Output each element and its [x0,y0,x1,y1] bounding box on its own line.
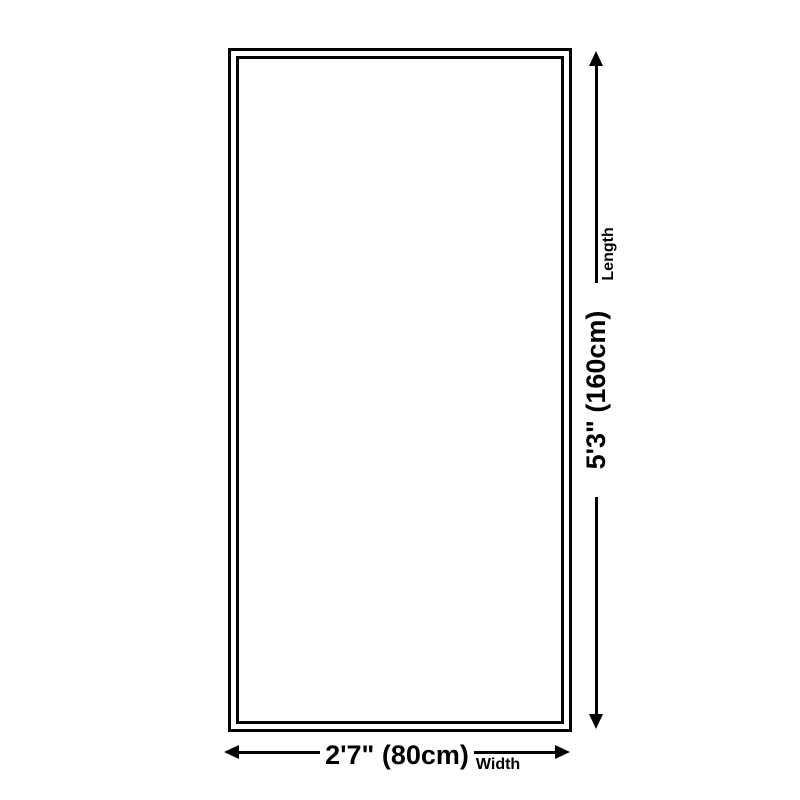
arrowhead-left-icon [224,745,239,759]
width-dimension-line-start [239,751,320,754]
width-value: 2'7" (80cm) [320,740,474,771]
width-dimension: 2'7" (80cm) Width [224,734,570,770]
product-outline-inner [236,56,564,724]
product-outline-outer [228,48,572,732]
width-dimension-line-end: Width [474,751,555,754]
length-dimension: 5'3" (160cm) Length [578,51,614,729]
width-label: Width [476,756,520,774]
arrowhead-up-icon [589,51,603,66]
length-dimension-line-start [595,497,598,714]
arrowhead-down-icon [589,714,603,729]
length-label: Length [600,227,618,280]
length-dimension-line-end: Length [595,66,598,283]
arrowhead-right-icon [555,745,570,759]
length-value: 5'3" (160cm) [581,283,612,498]
dimension-diagram: 2'7" (80cm) Width 5'3" (160cm) Length [0,0,800,800]
